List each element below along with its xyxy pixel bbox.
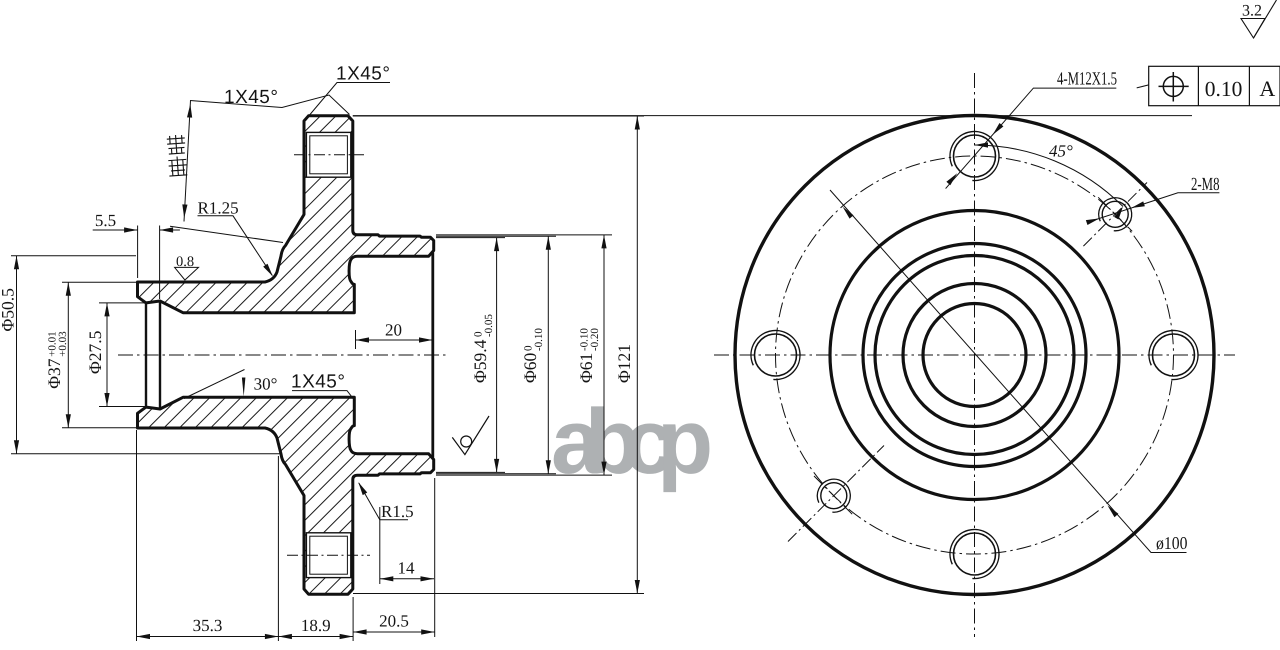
svg-text:A: A <box>1259 76 1275 101</box>
svg-text:3.2: 3.2 <box>1242 3 1262 20</box>
svg-text:4-M12X1.5: 4-M12X1.5 <box>1057 70 1117 90</box>
svg-text:20: 20 <box>385 321 402 340</box>
svg-text:Φ37: Φ37 <box>44 358 64 389</box>
svg-text:Φ61: Φ61 <box>576 353 596 383</box>
svg-text:45°: 45° <box>1049 142 1073 161</box>
svg-text:R1.5: R1.5 <box>381 502 414 521</box>
svg-text:Φ59.4: Φ59.4 <box>470 339 490 383</box>
svg-text:2-M8: 2-M8 <box>1191 175 1220 195</box>
svg-text:+0.03: +0.03 <box>57 331 69 357</box>
svg-text:0.10: 0.10 <box>1205 77 1243 101</box>
svg-text:1X45°: 1X45° <box>291 372 345 393</box>
svg-text:18.9: 18.9 <box>301 616 331 635</box>
svg-text:ø100: ø100 <box>1156 533 1188 553</box>
svg-text:Φ121: Φ121 <box>614 344 634 383</box>
svg-text:14: 14 <box>398 559 416 578</box>
svg-text:Φ50.5: Φ50.5 <box>0 288 18 332</box>
svg-text:1X45°: 1X45° <box>336 64 390 85</box>
svg-text:5.5: 5.5 <box>95 211 116 230</box>
svg-text:30°: 30° <box>254 375 278 394</box>
svg-text:-0.05: -0.05 <box>483 314 495 337</box>
svg-text:-0.20: -0.20 <box>589 328 601 351</box>
svg-text:abcp: abcp <box>551 391 710 493</box>
svg-text:35.3: 35.3 <box>193 616 223 635</box>
svg-text:R1.25: R1.25 <box>198 199 239 218</box>
svg-text:-0.10: -0.10 <box>533 328 545 351</box>
svg-text:Φ60: Φ60 <box>520 352 540 383</box>
svg-text:20.5: 20.5 <box>379 612 409 631</box>
svg-text:Φ27.5: Φ27.5 <box>85 330 105 374</box>
